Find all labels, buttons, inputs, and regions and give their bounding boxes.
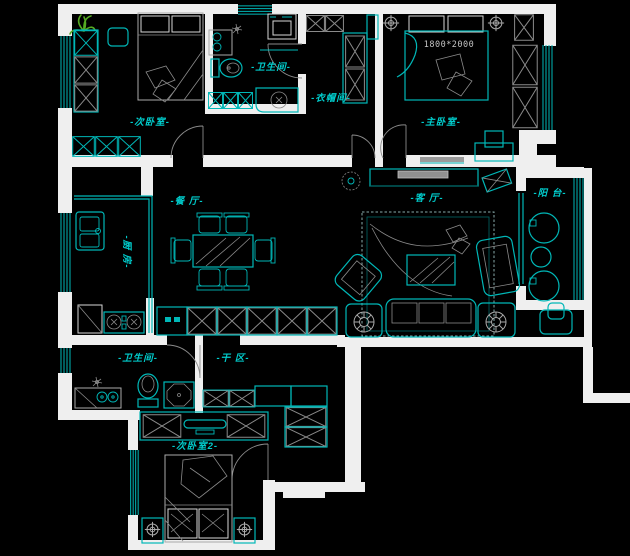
room-dining: -餐 厅- bbox=[171, 195, 275, 290]
room-bathroom2: -卫生间- bbox=[75, 352, 194, 408]
armchair-left bbox=[332, 252, 384, 304]
cad-floor-plan-canvas: -次卧室- -卫生间- bbox=[0, 0, 630, 556]
room-balcony: -阳 台- bbox=[529, 187, 572, 334]
door-cloakroom-icon bbox=[352, 135, 375, 158]
side-table-left bbox=[346, 304, 382, 337]
window-balcony-icon bbox=[574, 178, 583, 300]
window-bathroom1-icon bbox=[238, 6, 272, 14]
door-bedroom1-icon bbox=[171, 126, 203, 158]
window-master-icon bbox=[543, 45, 552, 130]
fridge-icon bbox=[78, 305, 102, 333]
room-label-living: -客 厅- bbox=[411, 192, 444, 204]
balcony-table-icon bbox=[531, 247, 551, 267]
window-bathroom2-icon bbox=[61, 348, 70, 373]
windows bbox=[61, 6, 583, 515]
exterior-interior-walls bbox=[58, 4, 630, 550]
stove-icon bbox=[104, 312, 144, 333]
window-bedroom1-icon bbox=[61, 36, 70, 108]
wardrobe-bedroom2 bbox=[140, 412, 268, 440]
tv-cabinet bbox=[370, 169, 478, 186]
dining-table bbox=[193, 235, 253, 267]
kitchen-sink-icon bbox=[76, 212, 104, 250]
room-bedroom2: -次卧室2- bbox=[140, 412, 268, 543]
hall-cabinets bbox=[157, 307, 337, 335]
room-label-bathroom2: -卫生间- bbox=[118, 352, 158, 364]
room-kitchen: -厨 房- bbox=[74, 196, 152, 333]
nightstand-bedroom1 bbox=[108, 28, 128, 46]
room-label-balcony: -阳 台- bbox=[534, 187, 567, 199]
shower-icon bbox=[164, 382, 194, 408]
floor-plan: -次卧室- -卫生间- bbox=[0, 0, 630, 556]
armchair-right bbox=[475, 235, 520, 296]
balcony-chair-icon bbox=[529, 213, 559, 243]
room-label-bedroom1: -次卧室- bbox=[130, 116, 170, 128]
room-label-dining: -餐 厅- bbox=[171, 195, 204, 207]
bed-master bbox=[397, 16, 488, 100]
speaker-icon bbox=[482, 169, 512, 192]
door-bedroom2-icon bbox=[232, 444, 268, 480]
room-label-cloakroom: -衣帽间- bbox=[311, 92, 351, 104]
plant-pot-icon bbox=[342, 172, 360, 190]
washing-machine-icon bbox=[268, 14, 296, 39]
bed-bedroom1 bbox=[138, 13, 203, 102]
room-label-master: -主卧室- bbox=[421, 116, 461, 128]
room-label-bathroom1: -卫生间- bbox=[251, 61, 291, 73]
balcony-sliding-door-icon bbox=[519, 193, 523, 284]
side-table-right bbox=[478, 303, 515, 337]
bed-size-dimension: 1800*2000 bbox=[424, 40, 475, 50]
window-kitchen-icon bbox=[61, 213, 70, 292]
room-living: -客 厅- bbox=[332, 169, 520, 337]
room-bedroom1: -次卧室- bbox=[70, 13, 203, 156]
decor-flower-icon bbox=[232, 24, 242, 34]
balcony-chair-icon bbox=[529, 271, 559, 301]
toilet-icon bbox=[138, 374, 158, 407]
room-label-kitchen: -厨 房- bbox=[121, 236, 133, 269]
room-label-dry-area: -干 区- bbox=[217, 353, 250, 364]
window-bedroom2-icon bbox=[131, 450, 139, 515]
toilet-icon bbox=[211, 59, 242, 77]
ceiling-symbol-icon bbox=[383, 15, 399, 31]
room-bathroom1: -卫生间- bbox=[208, 14, 298, 112]
ceiling-symbol-icon bbox=[488, 15, 504, 31]
washbasin-icon bbox=[75, 388, 121, 408]
decor-flower-icon bbox=[92, 377, 102, 387]
door-master-icon bbox=[381, 125, 406, 158]
room-label-bedroom2: -次卧室2- bbox=[172, 440, 218, 452]
bed-bedroom2 bbox=[165, 455, 232, 542]
tv-icon bbox=[398, 171, 448, 178]
room-cloakroom: -衣帽间- bbox=[307, 15, 378, 104]
tv-icon bbox=[184, 420, 226, 428]
